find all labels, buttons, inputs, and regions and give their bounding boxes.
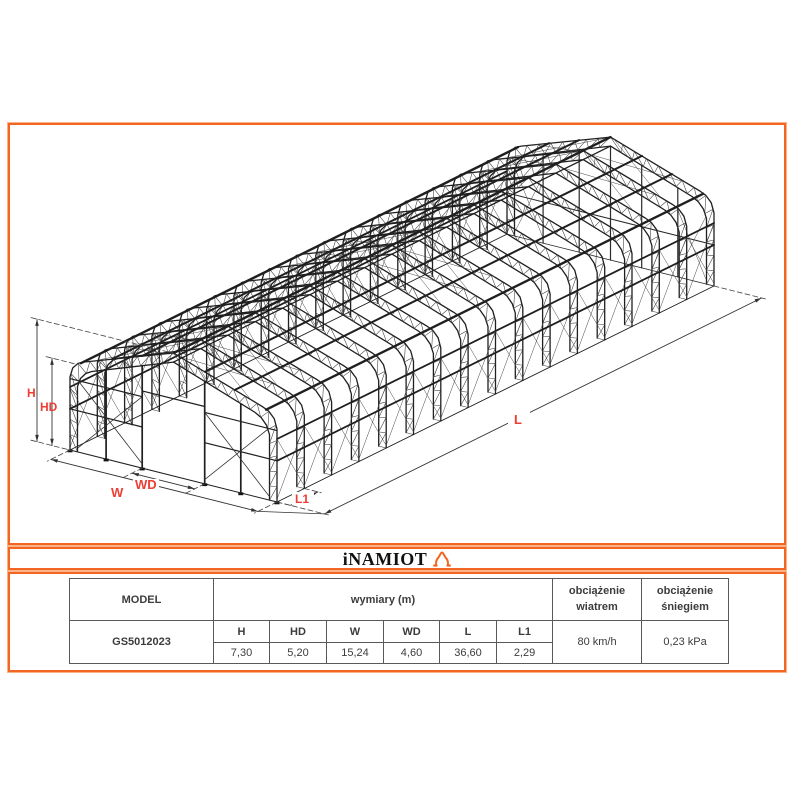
dim-label-l: L bbox=[440, 621, 497, 643]
logo-band: iNAMIOT bbox=[8, 547, 786, 570]
spec-table: MODEL wymiary (m) obciążenie wiatrem obc… bbox=[69, 578, 729, 664]
model-header-cell: MODEL bbox=[70, 579, 214, 621]
spec-sheet: iNAMIOT MODEL wymiary (m) obciążenie wia… bbox=[0, 0, 800, 800]
dim-value-h: 7,30 bbox=[214, 643, 270, 664]
dim-label-w: W bbox=[327, 621, 384, 643]
snow-header-cell: obciążenie śniegiem bbox=[642, 579, 729, 621]
dim-value-w: 15,24 bbox=[327, 643, 384, 664]
dims-header-cell: wymiary (m) bbox=[214, 579, 553, 621]
table-header-row: MODEL wymiary (m) obciążenie wiatrem obc… bbox=[70, 579, 729, 621]
tent-house-icon bbox=[433, 551, 451, 567]
dim-value-hd: 5,20 bbox=[270, 643, 327, 664]
dim-label-wd: WD bbox=[384, 621, 440, 643]
dim-value-l: 36,60 bbox=[440, 643, 497, 664]
model-value-cell: GS5012023 bbox=[70, 621, 214, 664]
table-panel: MODEL wymiary (m) obciążenie wiatrem obc… bbox=[8, 572, 786, 672]
wind-header-cell: obciążenie wiatrem bbox=[553, 579, 642, 621]
dim-label-hd: HD bbox=[270, 621, 327, 643]
dim-label-l1: L1 bbox=[497, 621, 553, 643]
dim-value-l1: 2,29 bbox=[497, 643, 553, 664]
dim-value-wd: 4,60 bbox=[384, 643, 440, 664]
snow-value-cell: 0,23 kPa bbox=[642, 621, 729, 664]
dim-label-row: GS5012023 H HD W WD L L1 80 km/h 0,23 kP… bbox=[70, 621, 729, 643]
drawing-panel bbox=[8, 123, 786, 545]
dim-label-h: H bbox=[214, 621, 270, 643]
logo-text: iNAMIOT bbox=[343, 550, 428, 568]
wind-value-cell: 80 km/h bbox=[553, 621, 642, 664]
